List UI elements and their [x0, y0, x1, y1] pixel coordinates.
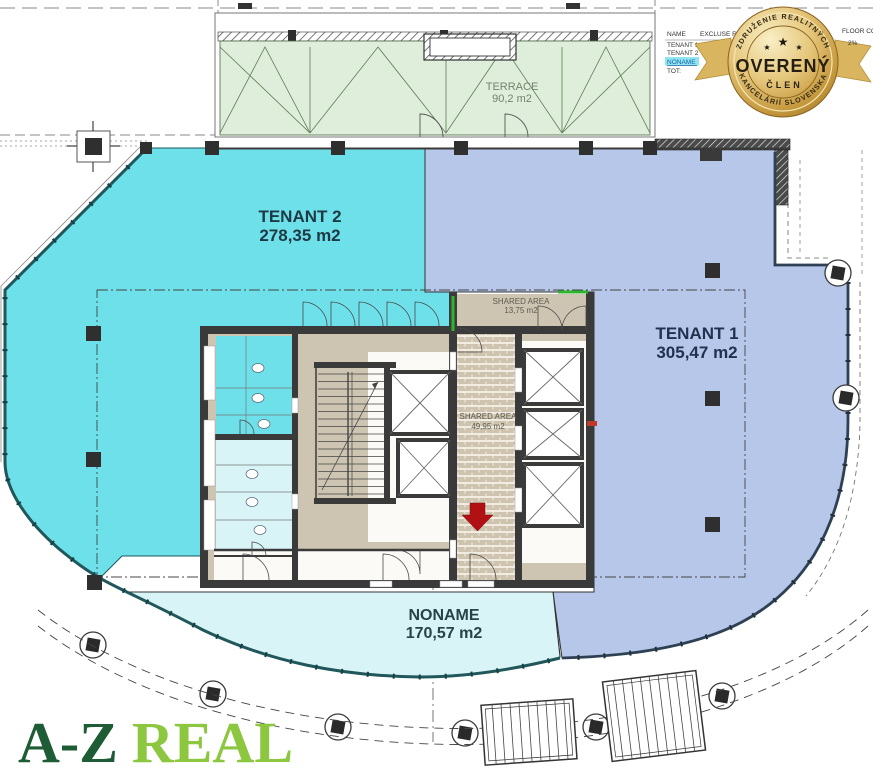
terrace-area-value: 90,2 m2	[492, 93, 532, 105]
badge-star-icon: ★	[778, 35, 789, 49]
restroom-noname	[216, 438, 292, 556]
legend-row-total: TOT:	[667, 68, 681, 75]
shared-small-area-value: 13,75 m2	[504, 306, 538, 315]
tenant1-label: TENANT 1	[655, 324, 738, 343]
agency-logo: A-ZREAL	[18, 710, 293, 768]
badge-member: ČLEN	[766, 79, 803, 90]
terrace-label: TERRACE	[486, 81, 539, 93]
floorplan-svg: TERRACE 90,2 m2	[0, 0, 873, 768]
logo-part-real: REAL	[132, 710, 293, 768]
badge-star-icon: ★	[763, 43, 770, 52]
logo-part-az: A-Z	[18, 710, 118, 768]
shared-large-label: SHARED AREA	[460, 412, 518, 421]
grille-panel	[602, 671, 705, 762]
badge-star-icon: ★	[795, 43, 802, 52]
noname-area-value: 170,57 m2	[406, 625, 483, 642]
shared-small-label: SHARED AREA	[493, 297, 551, 306]
hydrant-mark	[587, 421, 597, 426]
tenant2-area-value: 278,35 m2	[259, 226, 340, 245]
restroom-tenant2	[216, 336, 292, 434]
shared-large-area-value: 49,95 m2	[471, 422, 505, 431]
tenant1-area-value: 305,47 m2	[656, 343, 737, 362]
legend-col-name: NAME	[667, 31, 686, 38]
legend-col-floor: FLOOR CO	[842, 28, 873, 35]
legend-floor-value: 2%	[848, 40, 858, 47]
shared-corridor	[457, 334, 515, 583]
legend-row-tenant2: TENANT 2	[667, 50, 699, 57]
tenant2-label: TENANT 2	[258, 207, 341, 226]
legend-row-tenant1: TENANT 1	[667, 42, 699, 49]
legend-row-noname: NONAME	[667, 59, 696, 66]
badge-title: OVERENÝ	[735, 55, 830, 76]
noname-label: NONAME	[408, 607, 479, 624]
legend-col-excluse: EXCLUSE R	[700, 31, 737, 38]
building-core: SHARED AREA 13,75 m2 SHARED AREA 49,95 m…	[200, 292, 597, 588]
floorplan-page: TERRACE 90,2 m2	[0, 0, 873, 768]
grille-panel	[481, 699, 577, 765]
